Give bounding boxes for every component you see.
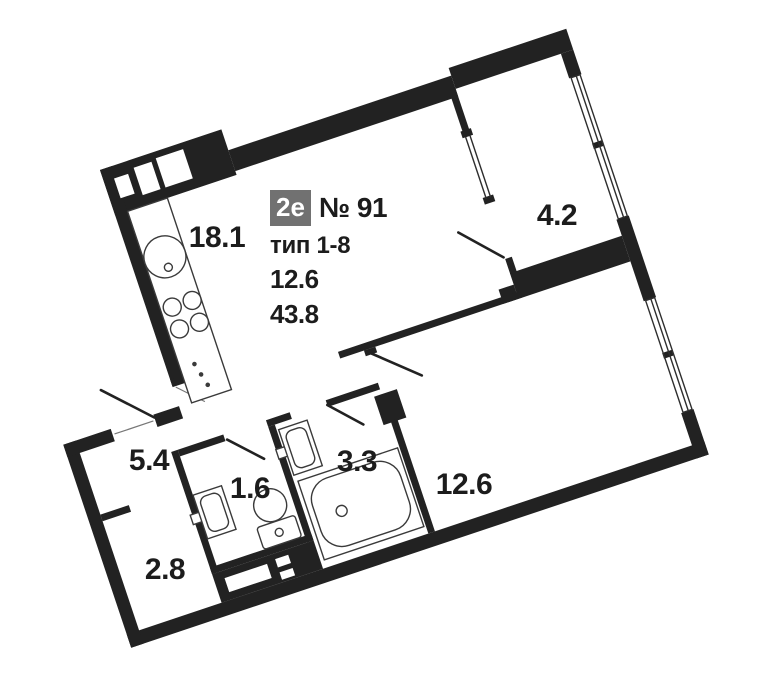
bedroom-door-pier — [374, 389, 406, 425]
bathroom-basin — [270, 420, 322, 478]
bottom-exterior-wall — [127, 441, 709, 648]
floor-plan-rotated-group — [0, 15, 709, 647]
floor-plan-svg — [0, 0, 770, 700]
fixtures — [92, 154, 423, 596]
main-room-top-wall — [228, 76, 458, 171]
left-exterior-wall — [63, 441, 143, 648]
floor-plan-page: 2е № 91 тип 1-8 12.6 43.8 18.14.212.63.3… — [0, 0, 770, 700]
hallway-wardrobe-stub — [100, 505, 131, 521]
corridor-wall-segment — [326, 383, 380, 407]
wc-door-leaf — [227, 430, 264, 468]
corridor-wall-segment — [266, 412, 292, 427]
balcony-partition-lower — [505, 257, 517, 274]
entry-door-leaf — [101, 377, 154, 431]
balcony-door-leaf — [458, 221, 503, 268]
living-bedroom-partition — [338, 291, 522, 359]
corridor-wall-segment — [178, 434, 226, 456]
entry-wall-right-segment — [153, 406, 183, 427]
entry-wall-left-segment — [63, 429, 115, 457]
bedroom-door-leaf — [371, 340, 422, 388]
walls — [0, 15, 709, 647]
balcony-partition-window — [466, 136, 491, 199]
balcony-bedroom-wall — [510, 236, 630, 299]
partition-window-cap — [483, 194, 496, 204]
balcony-corner-pier — [561, 50, 582, 79]
entry-threshold — [115, 421, 154, 434]
balcony-top-wall — [449, 29, 574, 89]
